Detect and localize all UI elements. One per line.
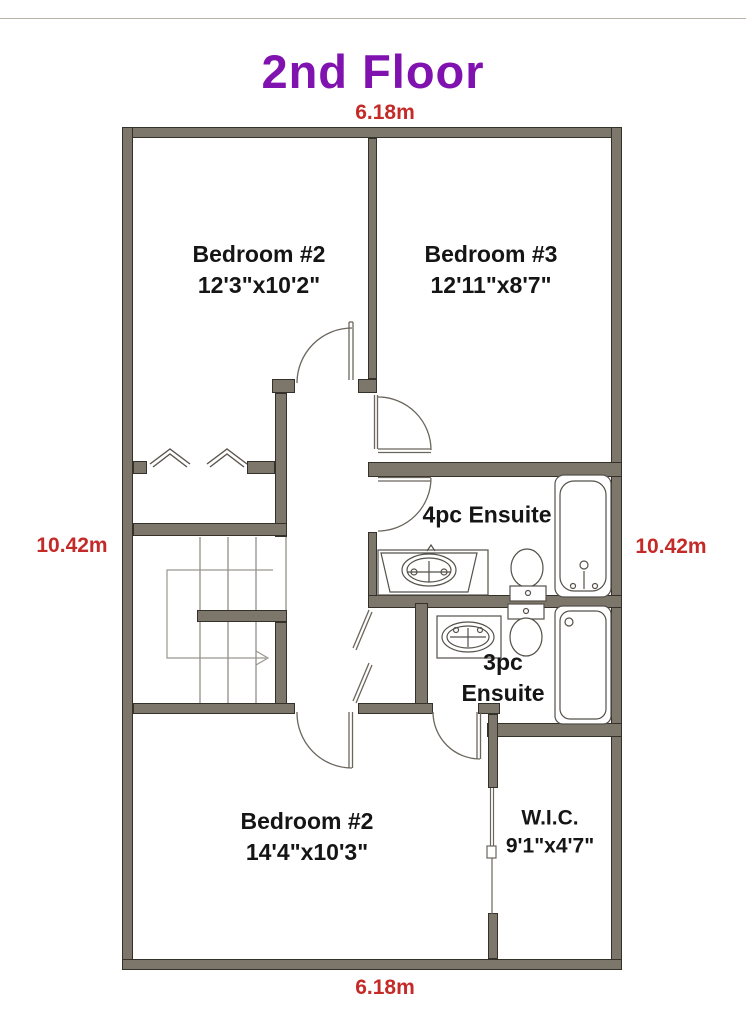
door-wic-icon	[487, 788, 496, 914]
floor-plan: 2nd Floor 6.18m 6.18m 10.42m 10.42m	[0, 0, 746, 1024]
label-ensuite-4pc: 4pc Ensuite	[422, 499, 551, 530]
door-bedroom2-top-icon	[297, 322, 353, 383]
room-name: 4pc Ensuite	[422, 499, 551, 530]
room-name: Bedroom #2	[241, 806, 374, 837]
label-bedroom3: Bedroom #3 12'11"x8'7"	[425, 239, 558, 301]
label-ensuite-3pc: 3pc Ensuite	[461, 647, 544, 709]
door-leaf-hall-icons	[353, 610, 372, 703]
door-bedroom2-bottom2-icon	[433, 712, 481, 759]
shower-icon	[555, 606, 611, 724]
room-size: 14'4"x10'3"	[241, 837, 374, 868]
symbols-overlay	[0, 0, 746, 1024]
label-bedroom2-bottom: Bedroom #2 14'4"x10'3"	[241, 806, 374, 868]
door-bedroom2-bottom-icon	[297, 712, 353, 768]
room-name: W.I.C.	[506, 805, 594, 833]
staircase-icon	[200, 537, 286, 703]
room-name-line2: Ensuite	[461, 678, 544, 709]
stair-direction-arrow	[167, 570, 273, 665]
room-name: Bedroom #2	[193, 239, 326, 270]
toilet-4pc-icon	[510, 549, 546, 601]
label-wic: W.I.C. 9'1"x4'7"	[506, 805, 594, 862]
room-name: Bedroom #3	[425, 239, 558, 270]
bifold-doors-icon	[150, 449, 247, 467]
room-size: 12'11"x8'7"	[425, 270, 558, 301]
room-name-line1: 3pc	[461, 647, 544, 678]
sink-4pc-icon	[378, 545, 488, 595]
bathtub-icon	[555, 475, 611, 597]
door-bedroom3-icon	[375, 395, 432, 453]
room-size: 12'3"x10'2"	[193, 270, 326, 301]
room-size: 9'1"x4'7"	[506, 833, 594, 861]
label-bedroom2-top: Bedroom #2 12'3"x10'2"	[193, 239, 326, 301]
